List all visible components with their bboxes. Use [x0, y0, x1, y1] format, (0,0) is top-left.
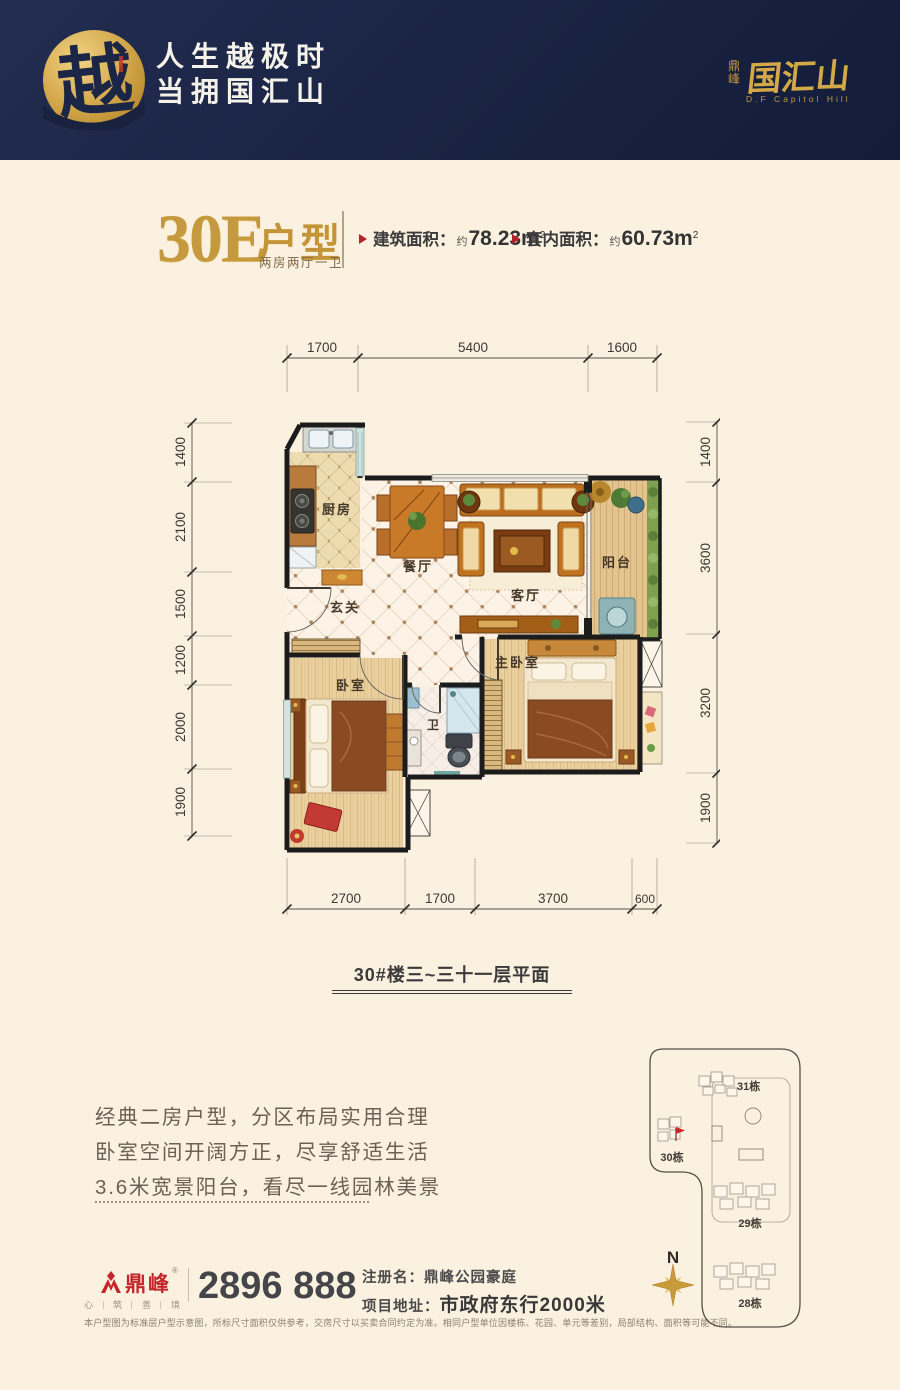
header-banner: 越 人生越极时 当拥国汇山 鼎峰 国汇山 D.F Capitol Hill — [0, 0, 900, 160]
stat-approx: 约 — [610, 233, 621, 249]
title-divider — [342, 211, 344, 268]
unit-subtitle: 两房两厅一卫 — [259, 252, 343, 271]
dim-right-4: 1900 — [698, 793, 713, 823]
dim-right-2: 3600 — [698, 543, 713, 573]
registered-name-value: 鼎峰公园豪庭 — [424, 1270, 517, 1286]
master-bedroom-label: 主卧室 — [495, 655, 540, 670]
dim-right-1: 1400 — [698, 437, 713, 467]
label-building-30: 30栋 — [660, 1150, 683, 1164]
selling-point-1: 经典二房户型，分区布局实用合理 — [95, 1100, 441, 1135]
red-triangle-icon — [359, 234, 367, 244]
brand-tagline: D.F Capitol Hill — [746, 94, 851, 104]
motto-char: 筑 — [113, 1298, 122, 1311]
dim-bottom-1: 2700 — [331, 891, 361, 906]
address-value: 市政府东行2000米 — [440, 1295, 606, 1316]
stat-value: 60.73m — [622, 227, 693, 251]
dim-left-6: 1900 — [173, 787, 188, 817]
dim-top-3: 1600 — [607, 340, 637, 355]
dim-bottom-2: 1700 — [425, 891, 455, 906]
stat-label: 套内面积： — [526, 226, 609, 250]
building-28 — [714, 1263, 775, 1289]
dim-bottom-4: 600 — [635, 892, 655, 906]
entry-label: 玄关 — [330, 600, 360, 615]
motto-char: 善 — [142, 1298, 151, 1311]
seal-mark-icon — [119, 56, 123, 72]
building-31 — [699, 1072, 737, 1096]
header-slogan: 人生越极时 当拥国汇山 — [156, 40, 331, 110]
dining-label: 餐厅 — [402, 559, 433, 574]
compass: N — [652, 1248, 694, 1306]
building-29 — [714, 1183, 775, 1209]
slogan-line-2: 当拥国汇山 — [156, 75, 331, 110]
slogan-line-1: 人生越极时 — [156, 40, 331, 75]
motto-separator — [160, 1301, 161, 1309]
address-line: 项目地址：市政府东行2000米 — [362, 1290, 606, 1317]
dingfeng-logo-icon — [100, 1271, 122, 1295]
stat-approx: 约 — [457, 233, 468, 249]
red-triangle-icon — [512, 234, 520, 244]
floor-plan: 厨房 餐厅 客厅 阳台 玄关 卧室 主卧室 卫 — [165, 335, 720, 950]
label-building-28: 28栋 — [738, 1296, 761, 1310]
registered-name-label: 注册名： — [362, 1270, 424, 1286]
phone-number: 2896 888 — [198, 1265, 357, 1308]
living-label: 客厅 — [511, 588, 541, 603]
stat-sup: 2 — [693, 230, 699, 241]
label-building-31: 31栋 — [737, 1079, 760, 1093]
motto-separator — [103, 1301, 104, 1309]
stat-inner-area: 套内面积： 约 60.73m 2 — [512, 226, 698, 251]
stat-label: 建筑面积： — [373, 226, 456, 250]
dim-left-2: 2100 — [173, 512, 188, 542]
dim-bottom-3: 3700 — [538, 891, 568, 906]
dotted-divider — [95, 1201, 369, 1203]
motto-char: 心 — [84, 1298, 93, 1311]
dim-top-1: 1700 — [307, 340, 337, 355]
balcony-label: 阳台 — [602, 555, 632, 570]
yue-logo-icon: 越 — [43, 30, 145, 130]
registered-mark: ® — [172, 1266, 178, 1275]
poster-page: 越 人生越极时 当拥国汇山 鼎峰 国汇山 D.F Capitol Hill 30… — [0, 0, 900, 1390]
site-amenities — [712, 1108, 763, 1160]
plan-caption: 30#楼三~三十一层平面 — [332, 961, 572, 994]
registered-name-line: 注册名：鼎峰公园豪庭 — [362, 1266, 606, 1287]
address-label: 项目地址： — [362, 1299, 440, 1315]
kitchen-label: 厨房 — [322, 502, 352, 517]
brand-prefix: 鼎峰 — [728, 60, 742, 86]
footer-brand-name: 鼎峰 — [125, 1268, 171, 1298]
motto-separator — [131, 1301, 132, 1309]
brand-name: 国汇山 — [745, 48, 853, 101]
dim-left-1: 1400 — [173, 437, 188, 467]
dim-top-2: 5400 — [458, 340, 488, 355]
selling-points: 经典二房户型，分区布局实用合理 卧室空间开阔方正，尽享舒适生活 3.6米宽景阳台… — [95, 1100, 441, 1205]
motto-char: 境 — [171, 1298, 180, 1311]
bath-label: 卫 — [427, 718, 441, 732]
unit-code: 30E — [157, 204, 264, 272]
selling-point-3: 3.6米宽景阳台，看尽一线园林美景 — [95, 1170, 441, 1205]
project-info: 注册名：鼎峰公园豪庭 项目地址：市政府东行2000米 — [362, 1266, 606, 1317]
dim-left-3: 1500 — [173, 589, 188, 619]
label-building-29: 29栋 — [738, 1216, 761, 1230]
brush-swoosh-icon — [43, 30, 145, 130]
compass-star-major — [652, 1264, 694, 1306]
dim-right-3: 3200 — [698, 688, 713, 718]
brand-motto: 心 筑 善 境 — [84, 1298, 180, 1311]
selling-point-2: 卧室空间开阔方正，尽享舒适生活 — [95, 1135, 441, 1170]
bedroom-label: 卧室 — [336, 678, 366, 693]
dim-left-5: 2000 — [173, 712, 188, 742]
footer-divider — [188, 1268, 189, 1302]
site-plan: 31栋 30栋 29栋 28栋 N — [635, 1040, 825, 1335]
dim-left-4: 1200 — [173, 645, 188, 675]
